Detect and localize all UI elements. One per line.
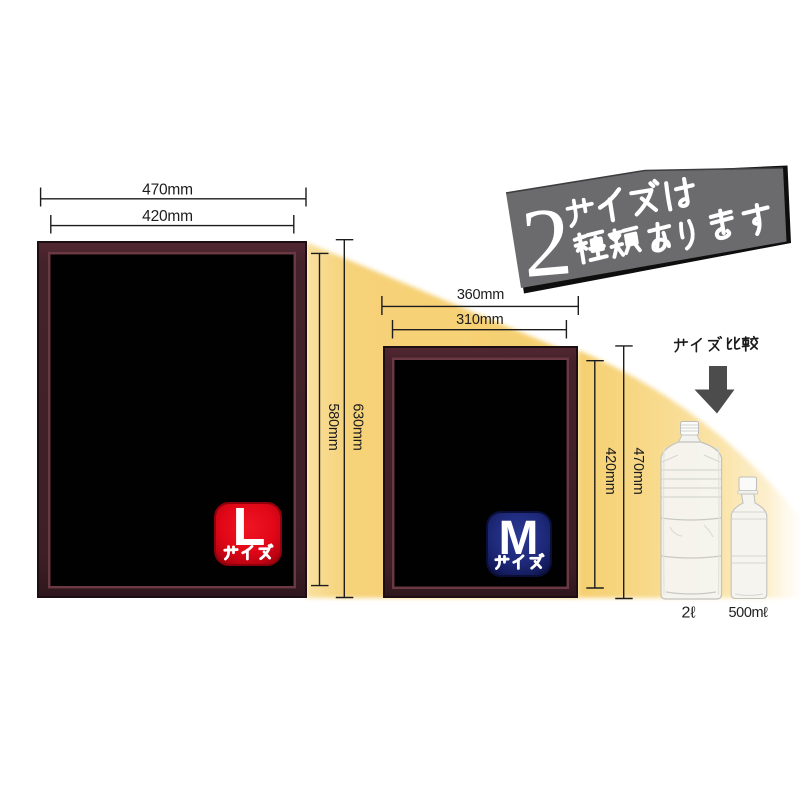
svg-text:310mm: 310mm [456,312,503,328]
svg-text:500mℓ: 500mℓ [729,605,769,621]
svg-text:420mm: 420mm [602,447,618,494]
svg-text:470mm: 470mm [142,182,193,199]
svg-text:2ℓ: 2ℓ [681,605,695,622]
svg-text:420mm: 420mm [142,208,193,225]
svg-text:360mm: 360mm [457,287,504,303]
svg-text:580mm: 580mm [325,403,341,450]
svg-text:2: 2 [518,187,576,299]
svg-text:470mm: 470mm [630,447,646,494]
svg-text:630mm: 630mm [350,403,366,450]
